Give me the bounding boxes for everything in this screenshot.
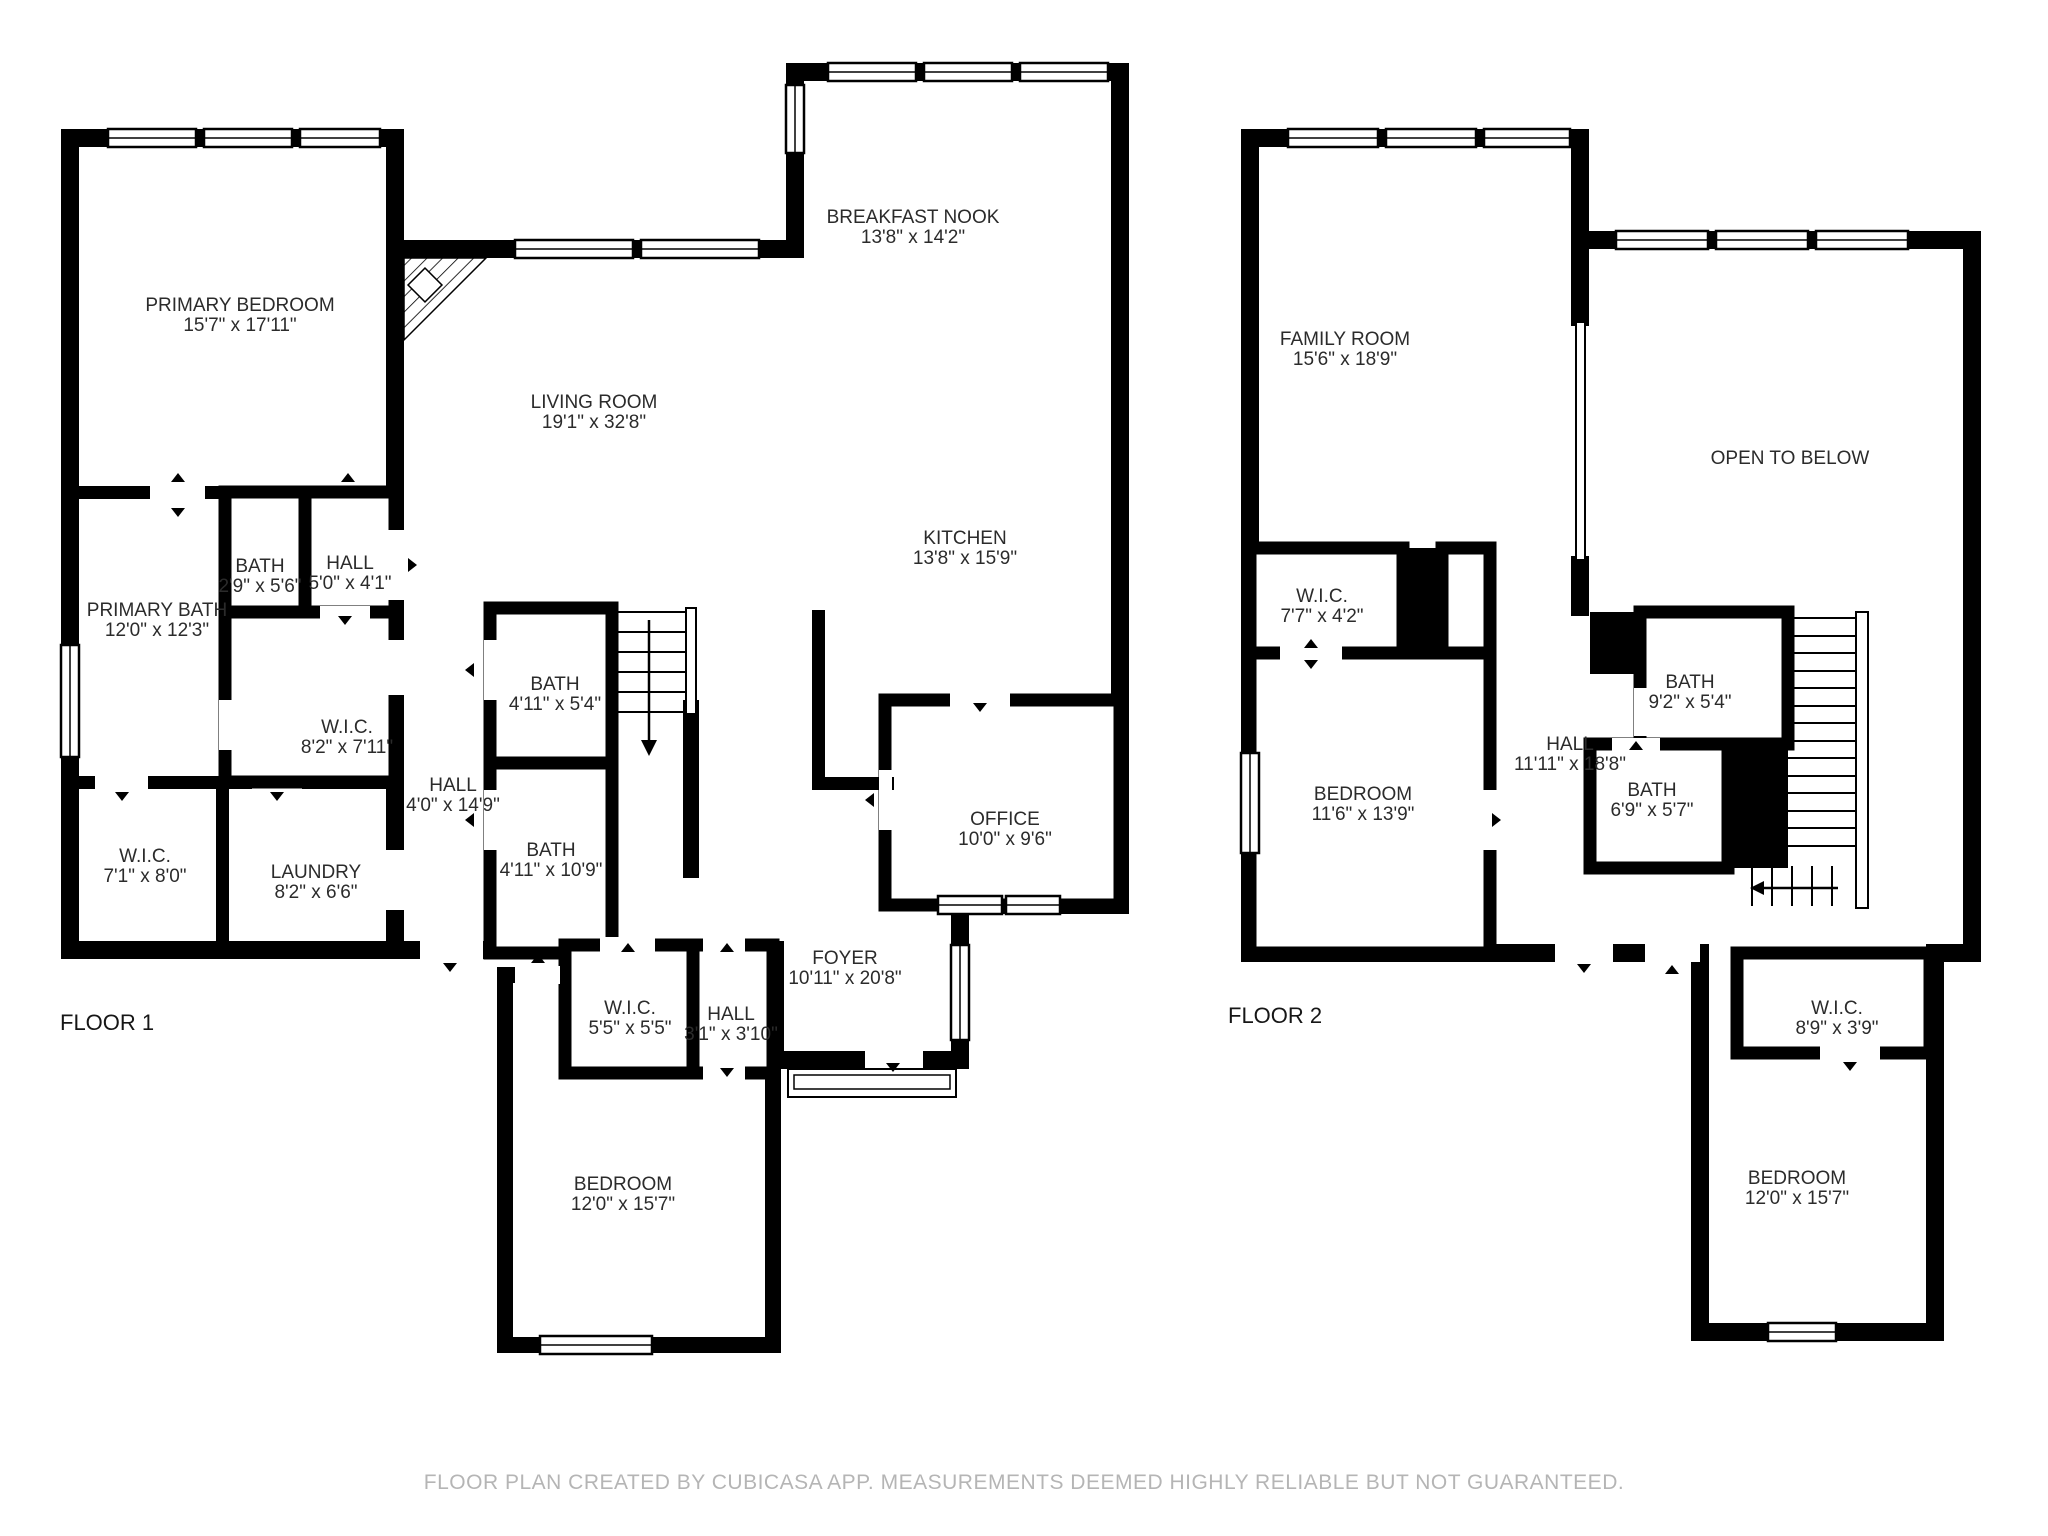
wall-segment [216, 789, 229, 950]
room-dims: 4'0" x 14'9" [406, 795, 500, 816]
room-name: PRIMARY BEDROOM [145, 295, 334, 316]
railing [686, 608, 696, 714]
floor-1: PRIMARY BEDROOM 15'7" x 17'11" LIVING RO… [60, 63, 1120, 1354]
room-name: LIVING ROOM [531, 392, 658, 413]
door-gap [420, 941, 483, 959]
room-name: HALL [429, 775, 477, 796]
room-name: PRIMARY BATH [87, 600, 227, 621]
room-dims: 10'0" x 9'6" [958, 829, 1052, 850]
room-name: BREAKFAST NOOK [827, 207, 1000, 228]
door-gap [879, 770, 892, 830]
room-name: KITCHEN [923, 528, 1006, 549]
room-dims: 13'8" x 15'9" [913, 548, 1017, 569]
room-name: W.I.C. [119, 846, 171, 867]
room-dims: 3'1" x 3'10" [684, 1024, 778, 1045]
room-name: W.I.C. [1296, 586, 1348, 607]
room-name: HALL [1546, 734, 1594, 755]
door-marker-icon [1665, 965, 1679, 974]
room-dims: 8'2" x 7'11" [301, 737, 393, 758]
room-name: BEDROOM [1314, 784, 1412, 805]
wall-segment [70, 776, 95, 789]
room-label-bedroom-f2: BEDROOM 12'0" x 15'7" [1745, 1168, 1849, 1209]
door-gap [386, 850, 404, 910]
door-marker-icon [443, 963, 457, 972]
room-dims: 7'7" x 4'2" [1280, 606, 1363, 627]
room-name: W.I.C. [1811, 998, 1863, 1019]
room-office [885, 700, 1120, 905]
room-name: OPEN TO BELOW [1711, 448, 1870, 469]
room-dims: 11'11" x 18'8" [1514, 754, 1626, 775]
room-dims: 4'11" x 10'9" [500, 860, 603, 881]
room-name: HALL [707, 1004, 755, 1025]
room-name: W.I.C. [604, 998, 656, 1019]
wall-segment [1571, 231, 1589, 326]
room-name: BATH [1665, 672, 1714, 693]
room-name: FAMILY ROOM [1280, 329, 1410, 350]
room-dims: 9'2" x 5'4" [1648, 692, 1731, 713]
wall-segment [1571, 556, 1589, 616]
room-name: LAUNDRY [271, 862, 362, 883]
door-gap [1634, 688, 1647, 736]
wall-segment [1728, 744, 1788, 868]
room-label-living-room: LIVING ROOM 19'1" x 32'8" [531, 392, 658, 433]
room-dims: 5'0" x 4'1" [308, 573, 391, 594]
wall-segment [78, 486, 150, 499]
door-gap [386, 640, 404, 695]
room-dims: 13'8" x 14'2" [861, 227, 965, 248]
room-label-bedroom-f1: BEDROOM 12'0" x 15'7" [571, 1174, 675, 1215]
room-dims: 6'9" x 5'7" [1610, 800, 1693, 821]
wall-segment [148, 776, 252, 789]
floor-plan-canvas: PRIMARY BEDROOM 15'7" x 17'11" LIVING RO… [0, 0, 2048, 1536]
wall-segment [683, 700, 699, 878]
room-dims: 4'11" x 5'4" [509, 694, 601, 715]
room-name: BEDROOM [1748, 1168, 1846, 1189]
wall-segment [302, 776, 395, 789]
room-name: HALL [326, 553, 374, 574]
floor-2: FAMILY ROOM 15'6" x 18'9" OPEN TO BELOW … [1228, 129, 1972, 1341]
room-label-laundry: LAUNDRY 8'2" x 6'6" [271, 862, 362, 903]
room-name: BATH [235, 556, 284, 577]
door-gap [484, 640, 497, 700]
room-name: BATH [530, 674, 579, 695]
room-dims: 11'6" x 13'9" [1312, 804, 1415, 825]
railing [1856, 612, 1868, 908]
door-gap [1645, 944, 1700, 962]
stair-head-space [1442, 548, 1490, 653]
door-marker-icon [1577, 964, 1591, 973]
room-label-primary-bath: PRIMARY BATH 12'0" x 12'3" [87, 600, 227, 641]
footer-caption: FLOOR PLAN CREATED BY CUBICASA APP. MEAS… [424, 1471, 1624, 1494]
room-dims: 12'0" x 15'7" [1745, 1188, 1849, 1209]
door-gap [1555, 944, 1613, 962]
room-dims: 2'9" x 5'6" [218, 576, 301, 597]
wall-segment [812, 610, 825, 790]
room-label-family-room: FAMILY ROOM 15'6" x 18'9" [1280, 329, 1410, 370]
room-dims: 15'7" x 17'11" [183, 315, 296, 336]
room-hall-50 [305, 492, 395, 612]
room-dims: 8'9" x 3'9" [1795, 1018, 1878, 1039]
room-dims: 5'5" x 5'5" [588, 1018, 671, 1039]
room-name: BEDROOM [574, 1174, 672, 1195]
entry-porch [788, 1069, 956, 1097]
room-label-kitchen: KITCHEN 13'8" x 15'9" [913, 528, 1017, 569]
room-dims: 8'2" x 6'6" [274, 882, 357, 903]
room-label-open-to-below: OPEN TO BELOW [1711, 448, 1870, 469]
room-name: OFFICE [970, 809, 1040, 830]
room-dims: 10'11" x 20'8" [788, 968, 901, 989]
wall-segment [1590, 612, 1642, 674]
room-dims: 7'1" x 8'0" [103, 866, 186, 887]
room-label-office: OFFICE 10'0" x 9'6" [958, 809, 1052, 850]
floor-plan-page: PRIMARY BEDROOM 15'7" x 17'11" LIVING RO… [0, 0, 2048, 1536]
door-gap [1820, 1045, 1880, 1061]
room-label-bedroom-116: BEDROOM 11'6" x 13'9" [1312, 784, 1415, 825]
room-dims: 12'0" x 15'7" [571, 1194, 675, 1215]
room-name: BATH [526, 840, 575, 861]
room-name: BATH [1627, 780, 1676, 801]
room-name: FOYER [812, 948, 877, 969]
room-dims: 19'1" x 32'8" [542, 412, 646, 433]
room-name: W.I.C. [321, 717, 373, 738]
floor-2-label: FLOOR 2 [1228, 1003, 1322, 1028]
room-dims: 12'0" x 12'3" [105, 620, 209, 641]
room-dims: 15'6" x 18'9" [1293, 349, 1397, 370]
door-gap [219, 700, 232, 750]
floor-1-label: FLOOR 1 [60, 1010, 154, 1035]
door-gap [515, 966, 560, 984]
railing [1576, 322, 1585, 560]
